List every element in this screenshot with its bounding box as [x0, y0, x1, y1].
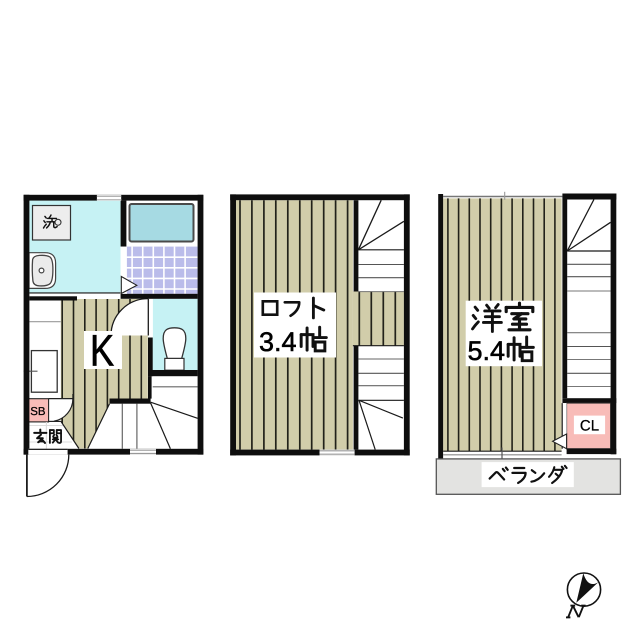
svg-text:SB: SB [30, 406, 46, 418]
svg-text:K: K [90, 327, 114, 376]
svg-text:3.4: 3.4 [259, 327, 297, 357]
svg-text:5.4: 5.4 [468, 336, 506, 366]
svg-text:CL: CL [580, 418, 599, 435]
